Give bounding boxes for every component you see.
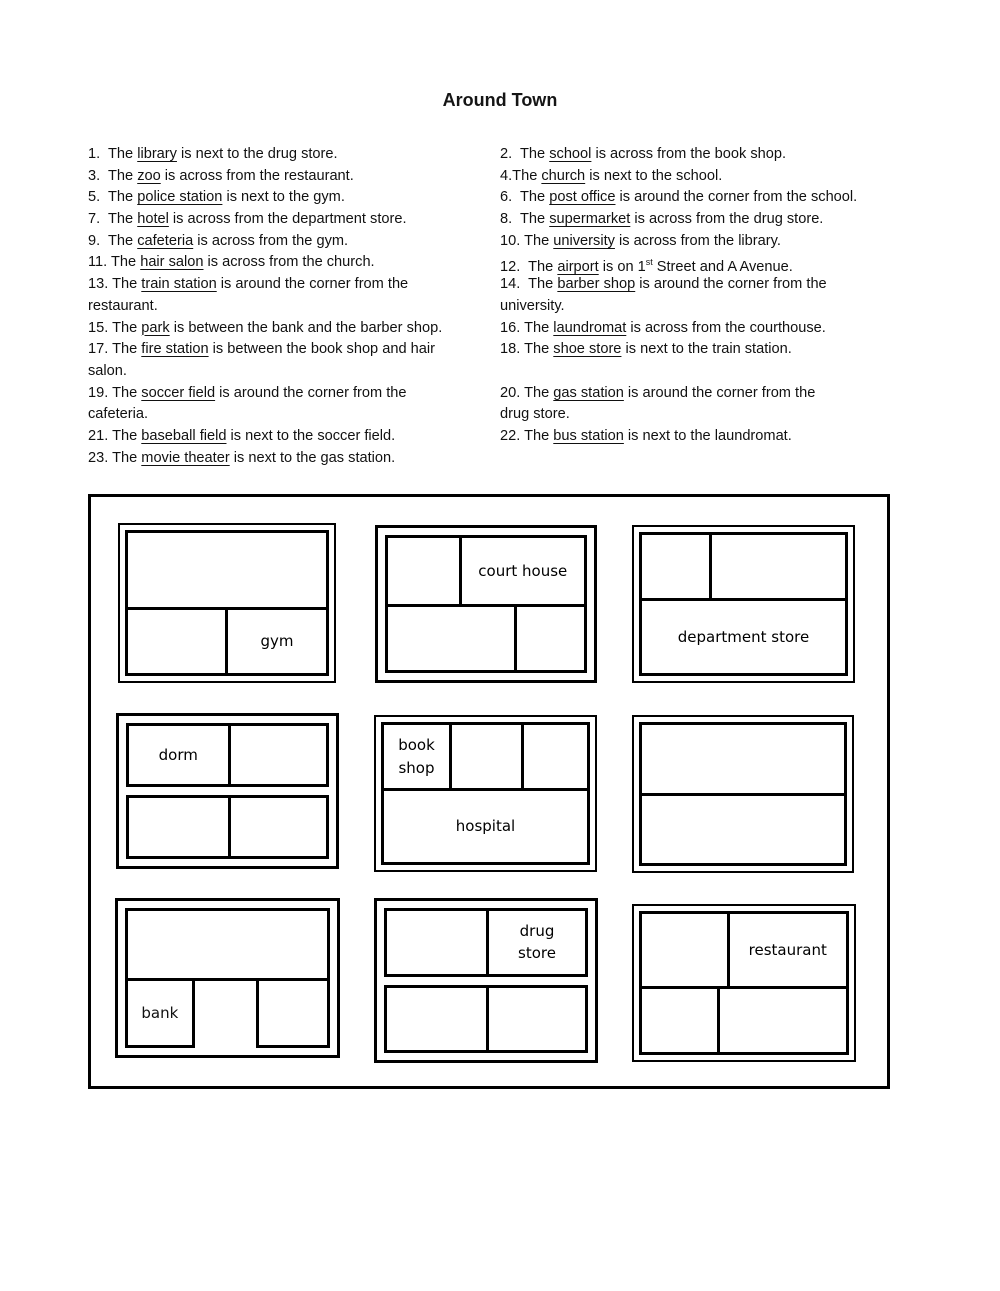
sentence-row: 1. The library is next to the drug store… <box>88 144 968 166</box>
sentence-item: 9. The cafeteria is across from the gym. <box>88 231 500 253</box>
map-cell-book-shop: book shop <box>384 725 449 788</box>
sentence-item: 14. The barber shop is around the corner… <box>500 274 960 317</box>
map-cell-empty <box>642 914 727 986</box>
map-cell-empty <box>256 978 330 1048</box>
sentence-item: 10. The university is across from the li… <box>500 231 960 253</box>
sentence-item: 21. The baseball field is next to the so… <box>88 426 500 448</box>
map-block-bank: bank <box>115 898 340 1058</box>
map-cell-empty <box>452 725 521 788</box>
map-cell-empty <box>388 607 514 670</box>
map-cell-empty <box>129 798 228 856</box>
sentence-row: 17. The fire station is between the book… <box>88 339 968 382</box>
sentence-item: 18. The shoe store is next to the train … <box>500 339 960 361</box>
map-block-dorm: dorm <box>116 713 339 869</box>
map-cell-empty <box>489 988 585 1051</box>
sentence-row: 19. The soccer field is around the corne… <box>88 383 968 426</box>
map-label-hospital: hospital <box>456 815 515 838</box>
sentence-item: 2. The school is across from the book sh… <box>500 144 960 166</box>
sentence-item: 3. The zoo is across from the restaurant… <box>88 166 500 188</box>
sentence-item: 22. The bus station is next to the laund… <box>500 426 960 448</box>
map-cell-empty <box>642 796 844 863</box>
map-cell-court-house: court house <box>462 538 584 604</box>
map-cell-gym: gym <box>228 610 326 673</box>
sentence-item: 4.The church is next to the school. <box>500 166 960 188</box>
sentence-row: 15. The park is between the bank and the… <box>88 318 968 340</box>
sentence-row: 23. The movie theater is next to the gas… <box>88 448 968 470</box>
map-cell-bank: bank <box>125 978 195 1048</box>
map-cell-empty <box>524 725 587 788</box>
map-cell-empty <box>642 725 844 793</box>
sentence-row: 21. The baseball field is next to the so… <box>88 426 968 448</box>
sentence-item: 15. The park is between the bank and the… <box>88 318 500 340</box>
sentence-row: 3. The zoo is across from the restaurant… <box>88 166 968 188</box>
sentence-item: 13. The train station is around the corn… <box>88 274 500 317</box>
map-label-dorm: dorm <box>159 744 198 767</box>
sentence-item: 23. The movie theater is next to the gas… <box>88 448 500 470</box>
sentence-item: 16. The laundromat is across from the co… <box>500 318 960 340</box>
sentence-item: 1. The library is next to the drug store… <box>88 144 500 166</box>
worksheet-page: Around Town 1. The library is next to th… <box>0 0 1000 1291</box>
sentence-item: 8. The supermarket is across from the dr… <box>500 209 960 231</box>
map-block-drug-store: drug store <box>374 898 598 1063</box>
map-cell-empty <box>642 989 717 1052</box>
map-block-department-store: department store <box>632 525 855 683</box>
sentence-item: 12. The airport is on 1st Street and A A… <box>500 252 960 274</box>
sentence-item: 17. The fire station is between the book… <box>88 339 500 382</box>
map-cell-dorm: dorm <box>129 726 228 784</box>
map-cell-empty <box>231 726 327 784</box>
map-cell-empty <box>387 988 486 1051</box>
map-cell-drug-store: drug store <box>489 911 585 974</box>
sentence-item: 11. The hair salon is across from the ch… <box>88 252 500 274</box>
map-open-space <box>195 981 257 1048</box>
sentence-item: 5. The police station is next to the gym… <box>88 187 500 209</box>
map-label-restaurant: restaurant <box>749 939 827 962</box>
map-block-gym: gym <box>118 523 336 683</box>
map-label-book-shop: book shop <box>384 734 449 779</box>
sentence-row: 5. The police station is next to the gym… <box>88 187 968 209</box>
map-cell-empty <box>231 798 327 856</box>
map-cell-empty <box>388 538 459 604</box>
map-cell-empty <box>387 911 486 974</box>
map-cell-empty <box>642 535 709 598</box>
map-cell-restaurant: restaurant <box>730 914 846 986</box>
map-label-department-store: department store <box>678 626 809 649</box>
sentence-row: 7. The hotel is across from the departme… <box>88 209 968 231</box>
sentence-item: 19. The soccer field is around the corne… <box>88 383 500 426</box>
map-block-hospital: book shop hospital <box>374 715 597 872</box>
sentence-row: 9. The cafeteria is across from the gym.… <box>88 231 968 253</box>
map-label-court-house: court house <box>478 560 567 583</box>
exercise-list: 1. The library is next to the drug store… <box>88 144 968 469</box>
map-block-empty <box>632 715 854 873</box>
map-label-bank: bank <box>141 1004 178 1022</box>
map-label-drug-store: drug store <box>504 920 570 965</box>
map-cell-empty <box>125 908 330 981</box>
sentence-row: 11. The hair salon is across from the ch… <box>88 252 968 274</box>
sentence-item: 6. The post office is around the corner … <box>500 187 960 209</box>
sentence-item: 20. The gas station is around the corner… <box>500 383 960 426</box>
map-cell-empty <box>517 607 584 670</box>
map-cell-empty <box>128 533 326 607</box>
map-cell-empty <box>712 535 845 598</box>
map-cell-empty <box>128 610 225 673</box>
map-cell-department-store: department store <box>642 601 845 673</box>
sentence-row: 13. The train station is around the corn… <box>88 274 968 317</box>
map-label-gym: gym <box>261 630 294 653</box>
town-map: gym court house department store <box>88 494 890 1089</box>
page-title: Around Town <box>0 90 1000 111</box>
sentence-item: 7. The hotel is across from the departme… <box>88 209 500 231</box>
map-cell-empty <box>720 989 846 1052</box>
map-cell-hospital: hospital <box>384 791 587 862</box>
map-block-restaurant: restaurant <box>632 904 856 1062</box>
map-block-court-house: court house <box>375 525 597 683</box>
